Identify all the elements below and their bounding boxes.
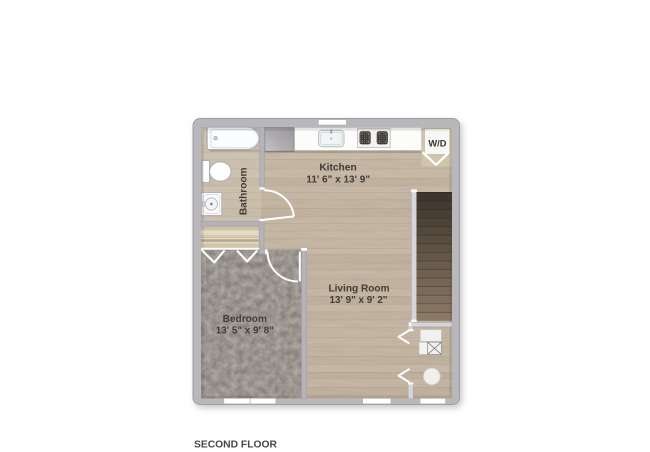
svg-text:Kitchen: Kitchen <box>319 163 356 174</box>
svg-text:13' 5" x 9' 8": 13' 5" x 9' 8" <box>216 326 274 337</box>
svg-text:Bedroom: Bedroom <box>223 314 267 325</box>
svg-text:13' 9" x 9' 2": 13' 9" x 9' 2" <box>330 295 388 306</box>
svg-text:W/D: W/D <box>428 138 446 148</box>
svg-text:SECOND FLOOR: SECOND FLOOR <box>194 439 278 450</box>
svg-text:Bathroom: Bathroom <box>238 167 249 215</box>
svg-text:Living Room: Living Room <box>328 284 389 295</box>
svg-text:11' 6" x 13' 9": 11' 6" x 13' 9" <box>306 175 370 186</box>
